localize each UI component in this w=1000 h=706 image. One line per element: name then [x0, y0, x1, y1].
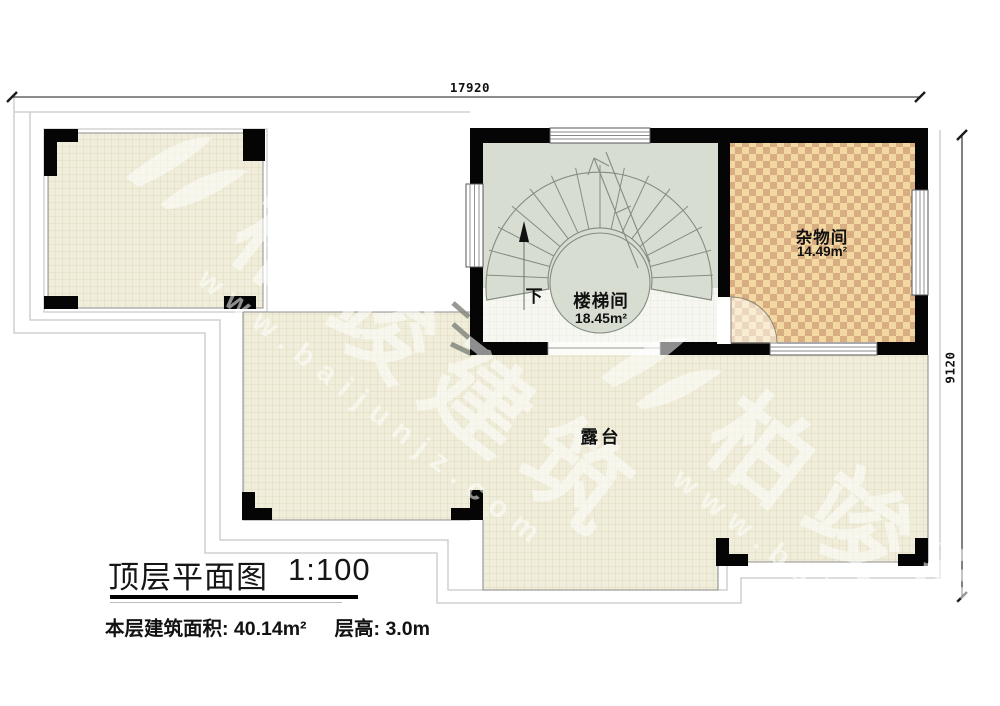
floor-plan-page: 柏竣建筑 www.baijunjz.com 柏竣建筑 www.baijunjz.… [0, 0, 1000, 706]
window [466, 184, 483, 267]
stair-direction-label: 下 [526, 282, 543, 307]
window [550, 128, 650, 143]
stairwell-area: 18.45m² [575, 310, 627, 326]
window [912, 190, 928, 295]
window [770, 343, 877, 355]
terrace-floor-right [718, 355, 928, 562]
drawing-title-row: 顶层平面图 1:100 [108, 552, 371, 597]
dimension-right: 9120 [943, 338, 958, 398]
floor-area-info: 本层建筑面积: 40.14m² [105, 612, 307, 641]
terrace-floor-left [243, 312, 483, 520]
drawing-info-row: 本层建筑面积: 40.14m² 层高: 3.0m [105, 612, 430, 641]
terrace-floor-middle [483, 355, 718, 590]
floor-plan-drawing [0, 0, 1000, 706]
drawing-title: 顶层平面图 [108, 552, 268, 597]
upper-room-floor [48, 133, 263, 308]
storage-room-area: 14.49m² [797, 244, 847, 259]
dimension-top: 17920 [430, 80, 510, 95]
title-underline [110, 595, 358, 599]
drawing-scale: 1:100 [288, 552, 371, 597]
title-underline-thin [110, 602, 342, 603]
terrace-threshold [548, 342, 660, 355]
floor-height-info: 层高: 3.0m [335, 612, 430, 641]
terrace-label: 露台 [581, 424, 622, 449]
